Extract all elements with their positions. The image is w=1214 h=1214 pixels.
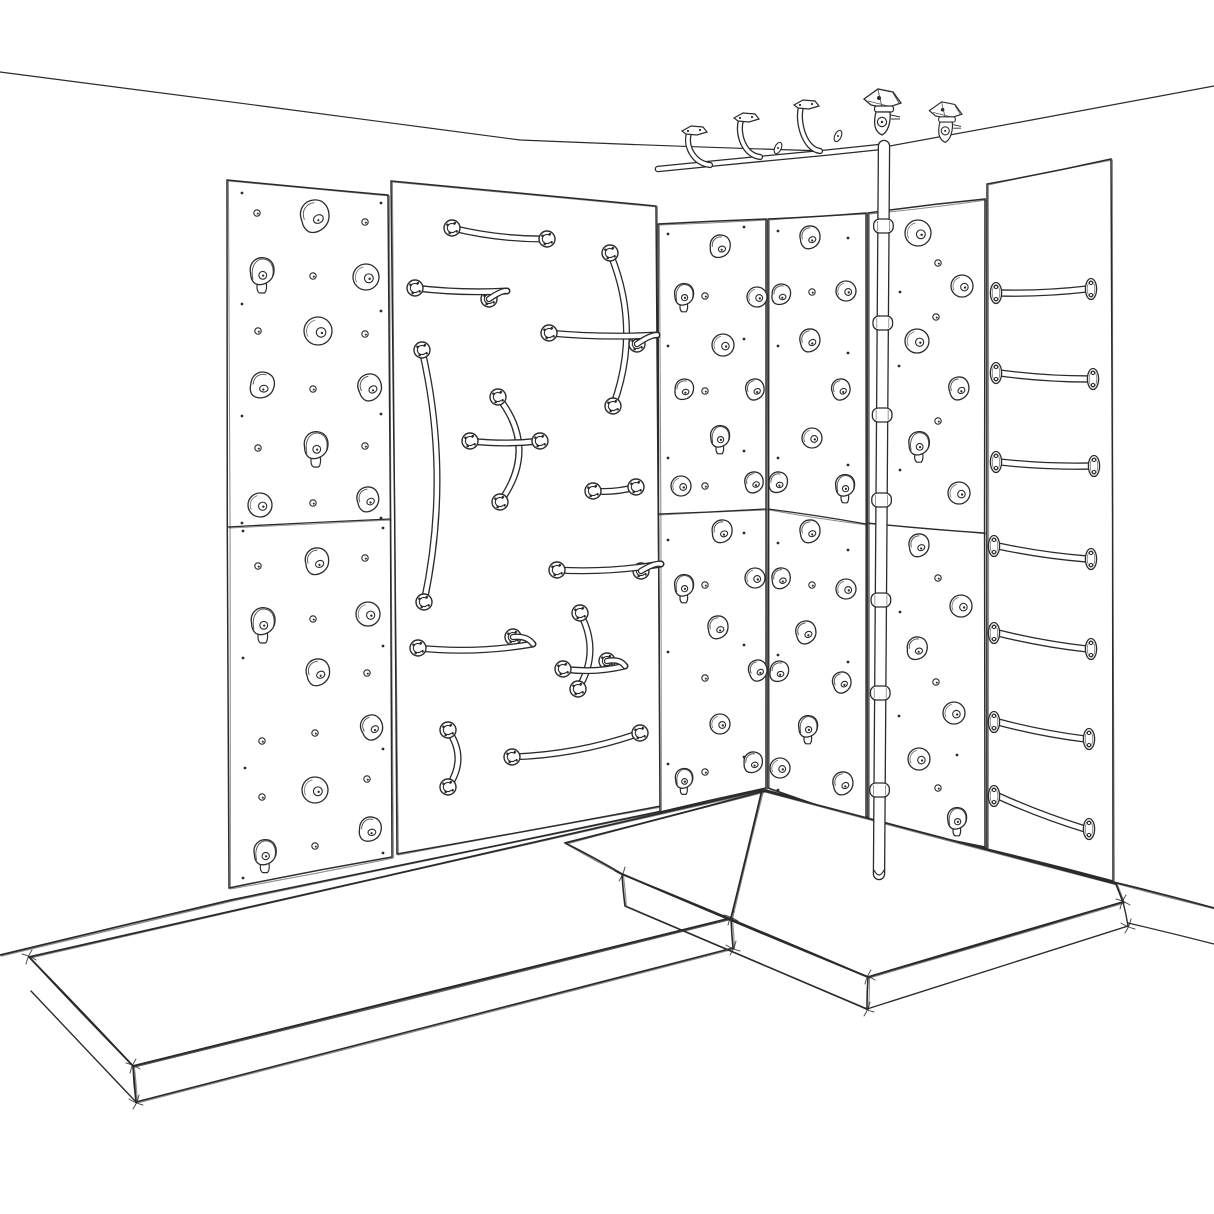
bar-flange xyxy=(444,220,460,236)
climbing-room-sketch: Hand-drawn sketch of a corner kids climb… xyxy=(0,0,1214,1214)
scene-svg: Hand-drawn sketch of a corner kids climb… xyxy=(0,0,1214,1214)
tnut-hole xyxy=(254,210,260,216)
bar-flange xyxy=(602,245,618,261)
rail-plate xyxy=(833,129,844,143)
tnut-hole xyxy=(310,616,316,622)
tnut-hole xyxy=(312,843,318,849)
tnut-dot xyxy=(743,532,746,535)
pole-collar xyxy=(873,316,893,330)
tnut-hole xyxy=(702,483,708,489)
ladder-panel xyxy=(987,159,1115,882)
climbing-hold xyxy=(712,334,734,356)
tnut-dot xyxy=(382,645,385,648)
tnut-dot xyxy=(847,237,850,240)
climbing-hold xyxy=(836,579,856,599)
tnut-hole xyxy=(702,582,708,588)
tnut-dot xyxy=(899,611,902,614)
tnut-hole xyxy=(809,582,815,588)
climbing-hold xyxy=(948,482,970,504)
ladder-flange xyxy=(1083,729,1094,750)
tnut-hole xyxy=(312,730,318,736)
pole-collar xyxy=(871,593,891,607)
pole-collar xyxy=(870,783,890,797)
ladder-flange xyxy=(1087,369,1098,390)
ceiling-plate xyxy=(682,126,707,135)
pole-swivel-mount xyxy=(929,102,962,142)
tnut-dot xyxy=(899,291,902,294)
bar-flange xyxy=(605,398,621,414)
climbing-hold xyxy=(772,568,790,589)
sketch-page: Hand-drawn sketch of a corner kids climb… xyxy=(0,0,1214,1214)
climbing-hold xyxy=(671,476,691,496)
ceiling-lines xyxy=(0,72,1214,152)
tnut-hole xyxy=(702,675,708,681)
bar-flange xyxy=(410,640,426,656)
tnut-hole xyxy=(935,260,941,266)
bar-flange xyxy=(440,722,456,738)
tnut-dot xyxy=(667,651,670,654)
climbing-hold xyxy=(770,758,790,778)
tnut-dot xyxy=(667,539,670,542)
tnut-dot xyxy=(241,522,244,525)
ceiling-plate xyxy=(734,113,759,122)
tnut-hole xyxy=(310,500,316,506)
ladder-flange xyxy=(1085,639,1096,660)
tnut-dot xyxy=(380,202,383,205)
pole-collar xyxy=(872,493,892,507)
bar-flange xyxy=(628,479,644,495)
ladder-flange xyxy=(1083,819,1094,840)
tnut-hole xyxy=(259,794,265,800)
tnut-hole xyxy=(255,328,261,334)
tnut-dot xyxy=(380,517,383,520)
climbing-hold xyxy=(745,568,765,588)
ladder-flange xyxy=(990,363,1001,384)
tnut-hole xyxy=(255,445,261,451)
tnut-dot xyxy=(847,352,850,355)
climbing-hold xyxy=(248,493,272,517)
climbing-hold xyxy=(943,702,965,724)
bar-flange xyxy=(504,749,520,765)
bar-flange xyxy=(490,389,506,405)
tnut-hole xyxy=(362,219,368,225)
tnut-dot xyxy=(667,457,670,460)
tnut-dot xyxy=(898,365,901,368)
ladder-flange xyxy=(1085,279,1096,300)
tnut-hole xyxy=(362,331,368,337)
climbing-hold xyxy=(710,714,730,734)
tnut-hole xyxy=(364,776,370,782)
tnut-dot xyxy=(241,192,244,195)
bar-flange xyxy=(407,280,423,296)
tnut-dot xyxy=(380,310,383,313)
climbing-hold xyxy=(304,317,332,345)
ladder-flange xyxy=(988,623,999,644)
tnut-dot xyxy=(743,338,746,341)
rail-plate xyxy=(773,141,784,155)
ceiling-hanger xyxy=(794,100,820,151)
ladder-flange xyxy=(988,536,999,557)
tnut-dot xyxy=(777,654,780,657)
tnut-hole xyxy=(255,563,261,569)
bar-flange xyxy=(440,779,456,795)
tnut-hole xyxy=(702,769,708,775)
pole-swivel-mounts xyxy=(864,89,962,142)
climbing-hold xyxy=(905,329,929,353)
pole-collar xyxy=(874,219,894,233)
climbing-hold xyxy=(802,428,822,448)
bar-flange xyxy=(541,325,557,341)
tnut-dot xyxy=(777,230,780,233)
climbing-hold xyxy=(712,520,732,543)
tnut-hole xyxy=(310,386,316,392)
climbing-hold xyxy=(302,777,328,803)
tnut-dot xyxy=(743,450,746,453)
pole-collar xyxy=(870,686,890,700)
bar-flange xyxy=(585,483,601,499)
tnut-hole xyxy=(364,670,370,676)
tnut-hole xyxy=(933,679,939,685)
bar-flange xyxy=(570,681,586,697)
bar-flange xyxy=(416,594,432,610)
bar-flange xyxy=(555,661,571,677)
tnut-dot xyxy=(847,661,850,664)
tnut-hole xyxy=(809,289,815,295)
tnut-dot xyxy=(956,754,959,757)
tnut-hole xyxy=(702,388,708,394)
ceiling-hanger xyxy=(734,113,760,157)
tnut-dot xyxy=(380,413,383,416)
bar-flange xyxy=(572,605,588,621)
tnut-dot xyxy=(242,877,245,880)
tnut-dot xyxy=(244,767,247,770)
ladder-flange xyxy=(990,283,1001,304)
ladder-flange xyxy=(988,712,999,733)
bar-flange xyxy=(414,342,430,358)
tnut-dot xyxy=(743,644,746,647)
tnut-dot xyxy=(241,415,244,418)
tnut-hole xyxy=(935,785,941,791)
tnut-hole xyxy=(310,273,316,279)
tnut-dot xyxy=(898,715,901,718)
tnut-dot xyxy=(241,303,244,306)
tnut-dot xyxy=(667,345,670,348)
tnut-hole xyxy=(362,555,368,561)
tnut-dot xyxy=(242,530,245,533)
tnut-dot xyxy=(242,657,245,660)
climbing-hold xyxy=(356,602,380,626)
tnut-hole xyxy=(702,293,708,299)
tnut-hole xyxy=(933,314,939,320)
tnut-hole xyxy=(935,418,941,424)
tnut-dot xyxy=(382,748,385,751)
tnut-dot xyxy=(899,469,902,472)
bar-flange xyxy=(462,433,478,449)
ceiling-rail xyxy=(658,100,880,169)
tnut-dot xyxy=(667,763,670,766)
bar-flange xyxy=(492,494,508,510)
ladder-flange xyxy=(1088,456,1099,477)
bar-flange xyxy=(532,433,548,449)
tnut-dot xyxy=(777,542,780,545)
climbing-hold xyxy=(950,595,972,617)
pole-collar xyxy=(872,408,892,422)
tnut-dot xyxy=(743,226,746,229)
ladder-flange xyxy=(1085,549,1096,570)
pole-swivel-mount xyxy=(864,89,901,135)
tnut-dot xyxy=(777,457,780,460)
climbing-hold xyxy=(836,281,856,301)
ceiling-hanger xyxy=(682,126,710,165)
climbing-hold xyxy=(905,220,931,246)
tnut-dot xyxy=(847,549,850,552)
ceiling-plate xyxy=(794,100,819,109)
climbing-hold xyxy=(951,275,973,297)
tnut-hole xyxy=(362,443,368,449)
tnut-dot xyxy=(382,527,385,530)
ladder-flange xyxy=(990,452,1001,473)
tnut-dot xyxy=(382,852,385,855)
ladder-flange xyxy=(988,786,999,807)
climbing-hold xyxy=(908,748,930,770)
climbing-hold xyxy=(353,264,379,290)
bar-flange xyxy=(539,231,555,247)
climbing-hold xyxy=(747,287,767,307)
bar-flange xyxy=(632,725,648,741)
tnut-hole xyxy=(259,738,265,744)
tnut-dot xyxy=(847,464,850,467)
tnut-dot xyxy=(777,789,780,792)
tnut-hole xyxy=(935,575,941,581)
tnut-dot xyxy=(777,345,780,348)
tnut-dot xyxy=(667,233,670,236)
bar-flange xyxy=(549,562,565,578)
